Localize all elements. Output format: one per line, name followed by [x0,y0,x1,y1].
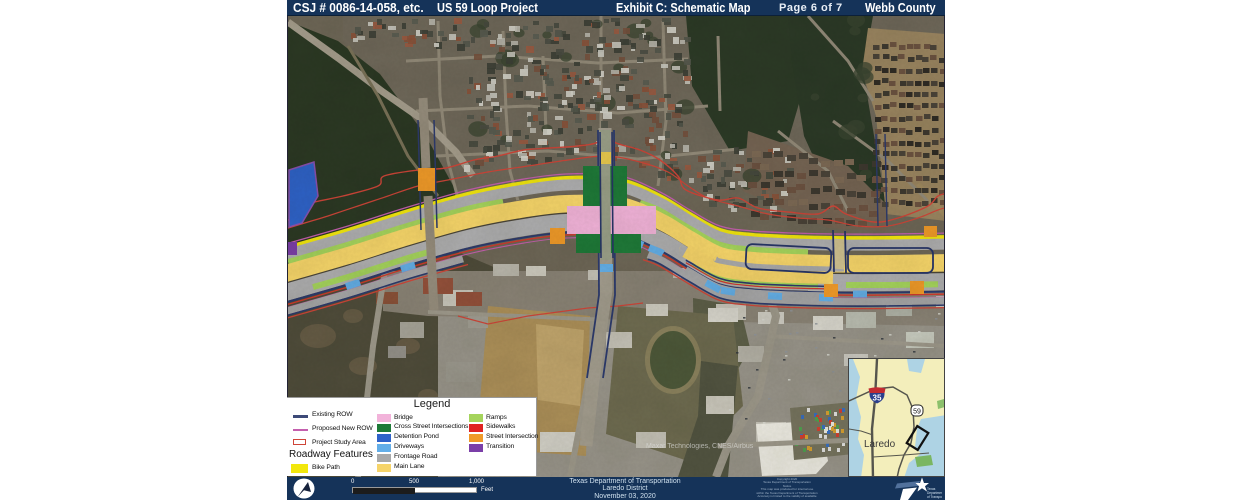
svg-text:of Transportation: of Transportation [927,495,942,499]
svg-text:59: 59 [913,409,921,416]
svg-text:Laredo: Laredo [864,439,896,450]
svg-text:35: 35 [873,394,882,403]
